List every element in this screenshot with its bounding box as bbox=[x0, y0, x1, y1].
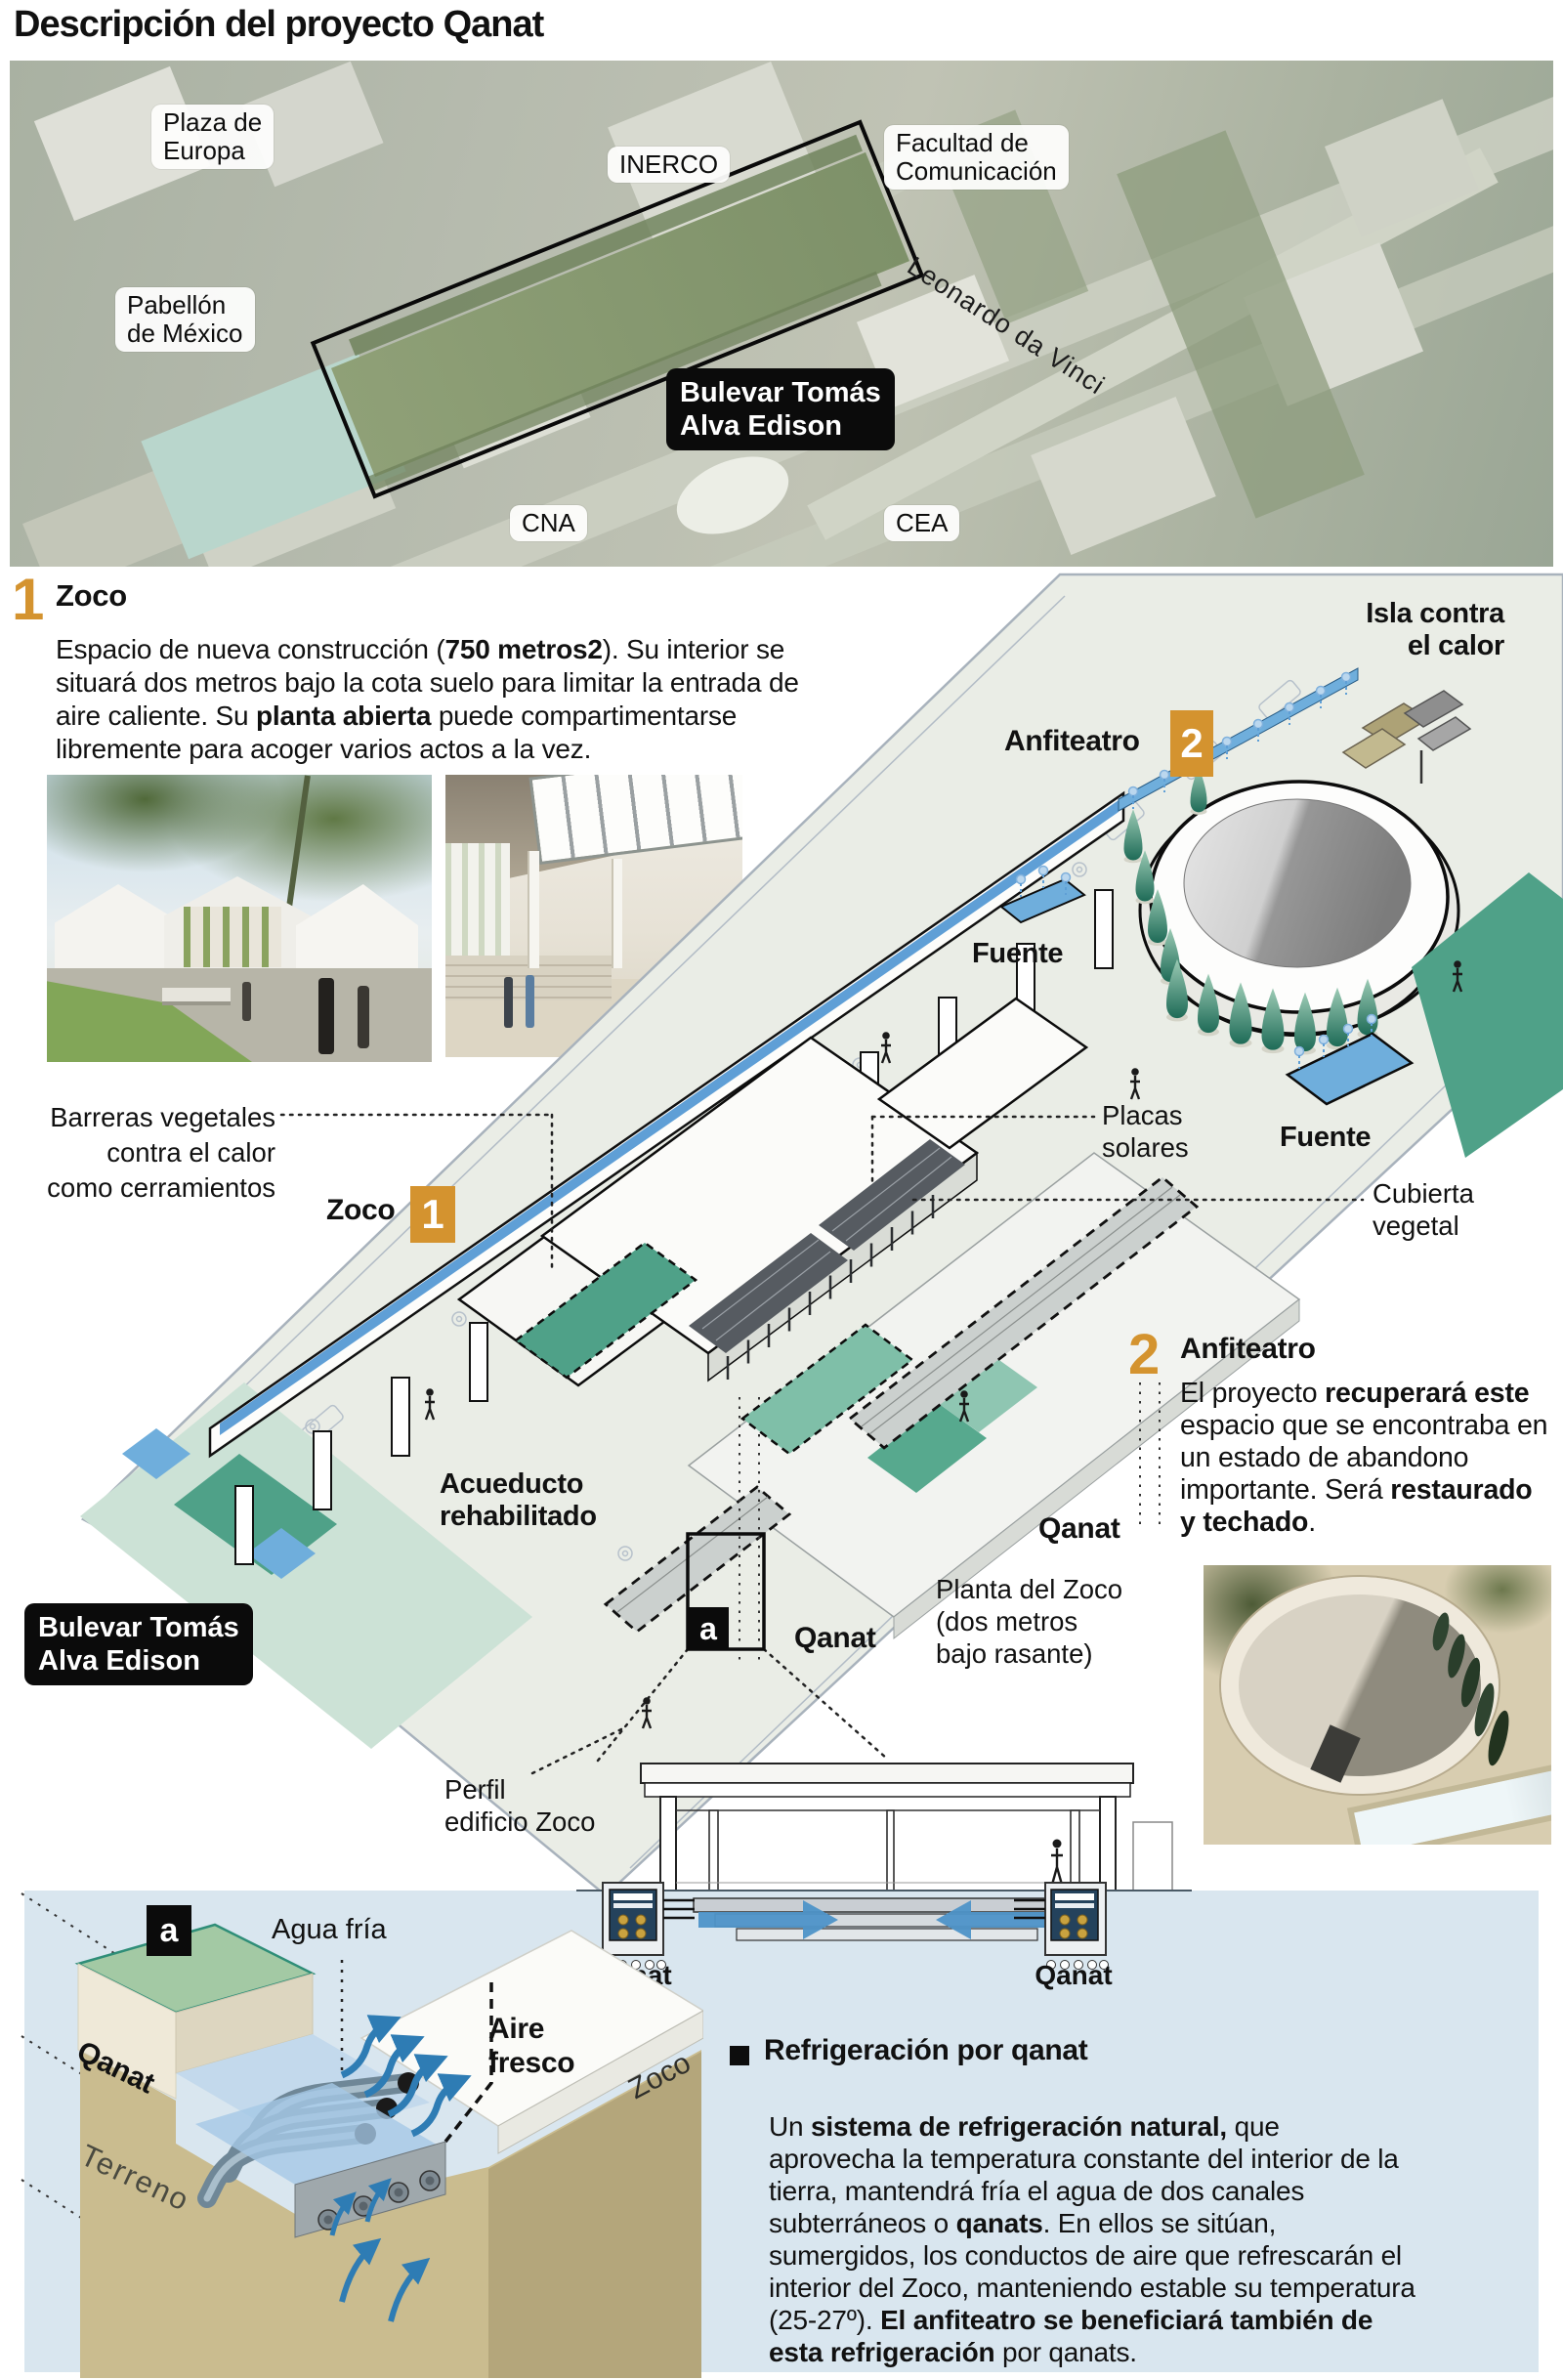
infographic-page: Descripción del proyecto Qanat Plaza de … bbox=[0, 0, 1563, 2380]
decor-amph-ring bbox=[1221, 1577, 1499, 1794]
label-placas: Placas solares bbox=[1102, 1099, 1189, 1164]
amphitheatre bbox=[1140, 782, 1458, 1036]
label-zoco: Zoco bbox=[326, 1194, 395, 1228]
label-bulevar-diagram: Bulevar Tomás Alva Edison bbox=[24, 1603, 253, 1685]
section-building bbox=[641, 1764, 1172, 1891]
heading-square-bullet bbox=[730, 2046, 749, 2065]
label-acueducto: Acueducto rehabilitado bbox=[440, 1468, 597, 1534]
aerial-label-cna: CNA bbox=[510, 505, 587, 541]
aerial-label-inerco: INERCO bbox=[608, 147, 730, 183]
label-planta: Planta del Zoco (dos metros bajo rasante… bbox=[936, 1573, 1122, 1670]
aerial-label-pabellon: Pabellón de México bbox=[115, 287, 255, 352]
aerial-label-bulevar: Bulevar Tomás Alva Edison bbox=[666, 368, 895, 450]
qanat-cutaway bbox=[20, 1891, 703, 2380]
label-isla: Isla contra el calor bbox=[1353, 598, 1504, 663]
aerial-label-cea: CEA bbox=[884, 505, 959, 541]
refrigeracion-body: Un sistema de refrigeración natural, que… bbox=[769, 2110, 1550, 2368]
aerial-photo: Plaza de Europa INERCO Facultad de Comun… bbox=[10, 61, 1553, 567]
label-qanat-section-right: Qanat bbox=[1017, 1960, 1130, 1991]
label-anfiteatro: Anfiteatro bbox=[1004, 725, 1140, 759]
aerial-label-plaza: Plaza de Europa bbox=[151, 105, 274, 169]
marker-2: 2 bbox=[1170, 710, 1213, 777]
section2-number: 2 bbox=[1128, 1327, 1160, 1383]
marker-a-diagram: a bbox=[688, 1607, 729, 1650]
label-qanat-left: Qanat bbox=[794, 1622, 876, 1656]
marker-a-cutaway: a bbox=[147, 1905, 191, 1956]
section2-heading: Anfiteatro bbox=[1180, 1333, 1316, 1366]
marker-1: 1 bbox=[410, 1186, 455, 1243]
label-fuente-right: Fuente bbox=[1280, 1122, 1371, 1154]
label-fuente-top: Fuente bbox=[972, 938, 1063, 970]
section-basement bbox=[694, 1898, 1080, 1940]
label-barreras: Barreras vegetales contra el calor como … bbox=[20, 1100, 275, 1205]
aerial-label-facultad: Facultad de Comunicación bbox=[884, 125, 1069, 190]
label-aire-fresco: Aire fresco bbox=[488, 2013, 574, 2080]
label-qanat-right: Qanat bbox=[1038, 1512, 1120, 1547]
refrigeracion-heading: Refrigeración por qanat bbox=[764, 2034, 1088, 2067]
page-title: Descripción del proyecto Qanat bbox=[14, 4, 543, 46]
section2-body: El proyecto recuperará este espacio que … bbox=[1180, 1378, 1561, 1539]
label-cubierta: Cubierta vegetal bbox=[1373, 1177, 1474, 1242]
label-agua-fria: Agua fría bbox=[272, 1913, 387, 1947]
section-person bbox=[1051, 1840, 1063, 1886]
render-photo-amphitheatre bbox=[1204, 1565, 1551, 1845]
decor-building bbox=[1031, 397, 1216, 555]
